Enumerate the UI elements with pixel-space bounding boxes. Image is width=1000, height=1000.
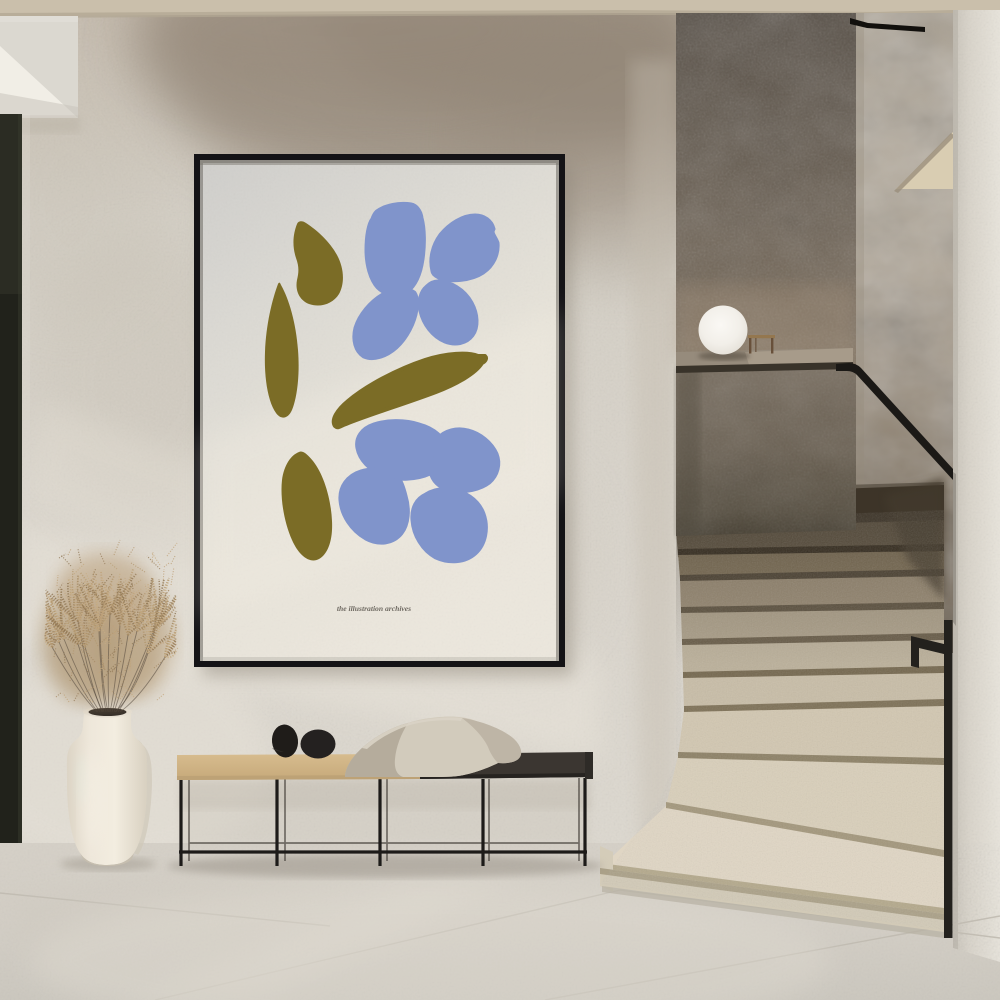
svg-text:the illustration archives: the illustration archives [337, 604, 411, 613]
